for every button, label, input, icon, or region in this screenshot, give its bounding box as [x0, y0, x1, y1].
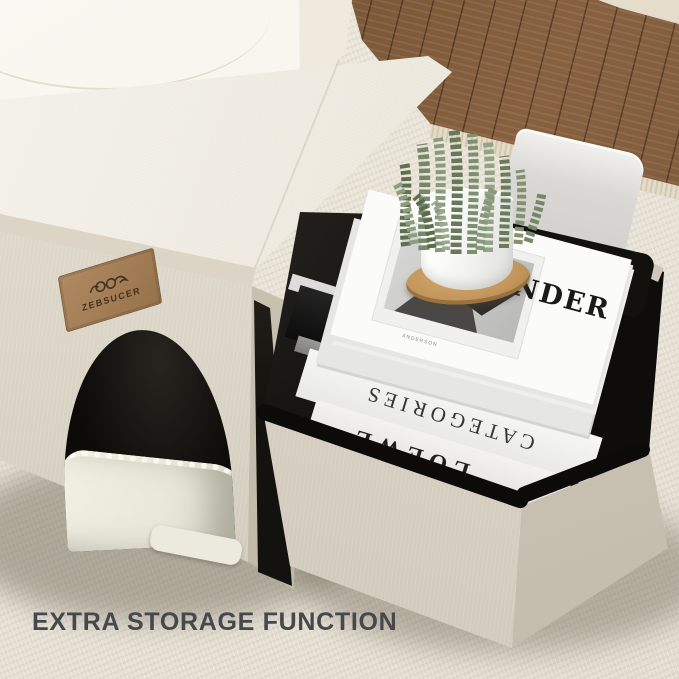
marketing-caption: EXTRA STORAGE FUNCTION [32, 608, 397, 637]
product-photo: ZEBSUCER Glacé Herve Wetzel CATEGORIES L… [0, 0, 679, 679]
succulent-plant [376, 104, 552, 256]
